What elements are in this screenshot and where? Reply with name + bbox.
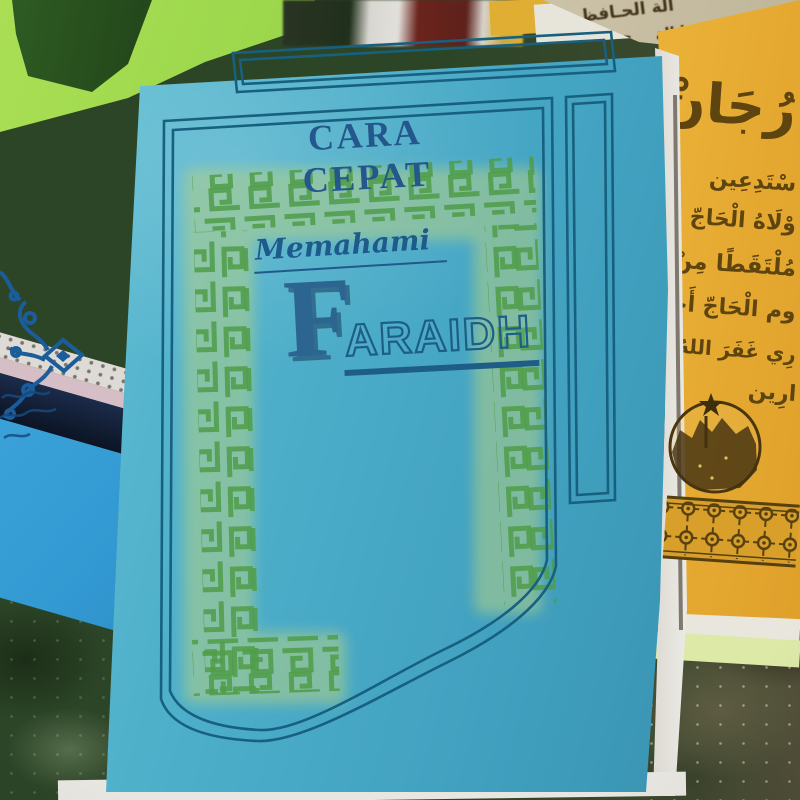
arabic-calligraphy-line: ارِين [747,379,797,407]
arabic-calligraphy-line: سْتَدِعِين [708,166,797,197]
title-outline-text: ARAIDH [342,305,540,376]
photo-scrap [283,0,523,46]
cover-header-text: CARA CEPAT [241,107,491,205]
photo-of-books-scene: الة الحـافظـو فظو الحـا الة حـافظ الة و … [0,0,800,800]
